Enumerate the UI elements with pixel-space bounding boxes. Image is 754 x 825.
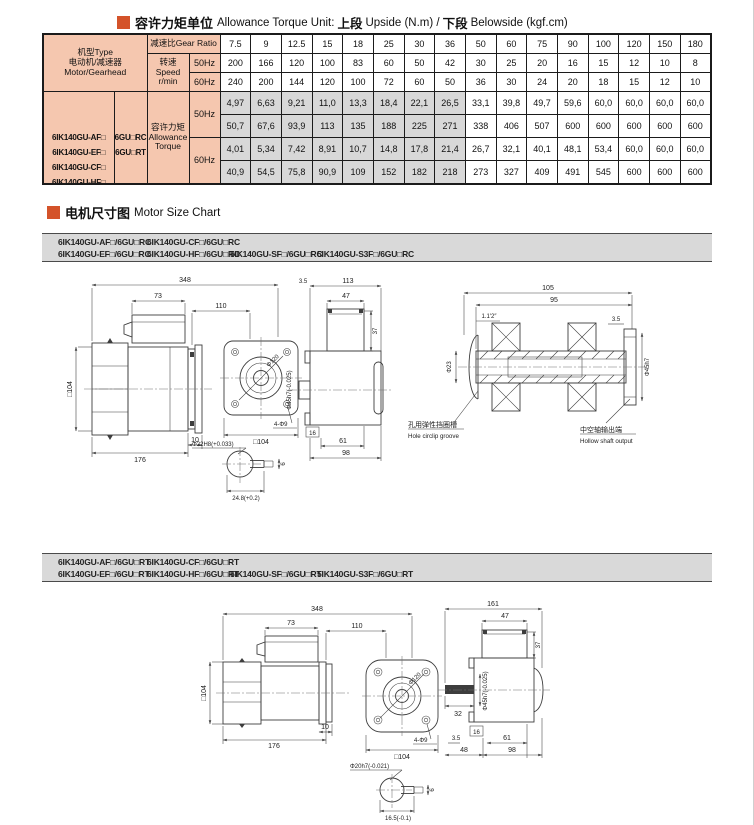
torque-cell: 13,3 [343,92,374,115]
note-hollow-en: Hollow shaft output [580,438,633,445]
torque-cell: 135 [343,115,374,138]
model-list: 6IK140GU-AF□6IK140GU-EF□6IK140GU-CF□6IK1… [44,130,114,145]
speed-cell: 16 [557,54,588,73]
gear-ratio-cell: 30 [404,34,435,54]
rc-model-label: 5IK140GU-SF□/6GU□RC [230,248,317,260]
note-circlip-zh: 孔用弹性挡圈槽 [408,420,457,429]
speed-cell: 30 [496,73,527,92]
dim-frame-size: □104 [201,685,208,701]
torque-cell: 48,1 [557,138,588,161]
dim-key-bore: Φ20h7(-0.021) [350,764,389,770]
torque-cell: 59,6 [557,92,588,115]
torque-cell: 26,5 [435,92,466,115]
speed-cell: 120 [312,73,343,92]
speed-unit: r/min [148,77,189,87]
gearhead-list: 6GU□RC6GU□RT [115,130,147,145]
dim-edge: 3.5 [612,317,621,323]
gearhead-label: 6GU□RC [115,130,147,145]
dim-taper: 1.1′2″ [482,314,498,320]
speed-cell: 50 [435,73,466,92]
speed-cell: 166 [251,54,282,73]
rt-model-label: 6IK140GU-CF□/6GU□RT [147,556,230,568]
circlip-groove-note: 孔用弹性挡圈槽 Hole circlip groove [408,391,478,440]
torque-cell: 9,21 [281,92,312,115]
torque-cell: 90,9 [312,161,343,185]
dim-shaft-dia: Φ45h7(-0.025) [287,370,293,409]
torque-cell: 60,0 [649,92,680,115]
gear-ratio-cell: 15 [312,34,343,54]
dim-total-length: 348 [179,277,191,284]
rt-front-view: Φ120 4-Φ9 □104 [362,656,442,761]
rc-model-label: 6IK140GU-CF□/6GU□RC [147,236,230,248]
dim-bolt-holes: 4-Φ9 [274,422,288,428]
torque-cell: 26,7 [465,138,496,161]
speed-cell: 72 [373,73,404,92]
rt-side-view: 348 73 110 □104 176 10 [201,606,412,750]
rc-bar-line1: 6IK140GU-AF□/6GU□RC6IK140GU-CF□/6GU□RC [58,236,712,248]
gear-ratio-cell: 120 [619,34,650,54]
torque-upper-zh: 上段 [337,13,362,32]
torque-cell: 7,42 [281,138,312,161]
speed-cell: 12 [649,73,680,92]
rc-models-bar: 6IK140GU-AF□/6GU□RC6IK140GU-CF□/6GU□RC 6… [42,233,712,262]
gearhead-cell: 6GU□RC6GU□RT [114,92,147,185]
rt-shaft-side-view: 161 47 37 32 Φ45h7(-0.025) 16 3.5 61 48 … [438,601,550,758]
dim-frame-size: □104 [67,381,74,397]
hz60-header-cell: 60Hz [189,73,220,92]
rt-dimension-drawing: 348 73 110 □104 176 10 Φ12 [190,588,690,825]
dim-hub: Φ45h7 [645,357,651,376]
dim-shaft-dia: Φ45h7(-0.025) [483,671,489,710]
torque-cell: 188 [373,115,404,138]
torque-cell: 600 [649,115,680,138]
model-label: 6IK140GU-CF□ [44,160,114,175]
speed-cell: 8 [680,54,711,73]
torque-cell: 10,7 [343,138,374,161]
dim-61: 61 [503,735,511,742]
dim-key-width: 6 [281,462,287,466]
torque-cell: 600 [619,115,650,138]
catalog-page: { "torque_header": { "title_zh": "容许力矩单位… [0,0,754,825]
torque-cell: 600 [588,115,619,138]
dim-16: 16 [309,431,316,437]
torque-cell: 273 [465,161,496,185]
dim-side-total: 113 [342,278,353,285]
dim-face-frame: □104 [253,439,269,446]
gear-ratio-cell: 25 [373,34,404,54]
speed-cell: 10 [680,73,711,92]
speed-cell: 100 [343,73,374,92]
dim-box-height: 37 [373,327,379,334]
gear-ratio-cell: 50 [465,34,496,54]
speed-cell: 12 [619,54,650,73]
size-title-en: Motor Size Chart [134,207,220,219]
dim-bore: Φ23 [447,361,453,373]
gear-ratio-row: 机型Type 电动机/减速器 Motor/Gearhead 减速比Gear Ra… [43,34,711,54]
torque-cell: 218 [435,161,466,185]
gear-ratio-cell: 12.5 [281,34,312,54]
rc-keyway-detail: Φ22H8(+0.033) 6 24.8(+0.2) [192,442,287,502]
speed-cell: 25 [496,54,527,73]
dim-right-total: 161 [487,601,499,608]
speed-cell: 200 [251,73,282,92]
torque-cell: 182 [404,161,435,185]
dim-98: 98 [508,747,516,754]
speed-cell: 144 [281,73,312,92]
torque-cell: 53,4 [588,138,619,161]
rc-hollow-shaft-section: 105 95 1.1′2″ 3.5 Φ23 Φ45h7 中空轴输出端 Hollo… [447,285,651,445]
dim-bolt-holes: 4-Φ9 [414,738,428,744]
dim-gear-length: 110 [215,303,226,310]
torque-cell: 60,0 [680,92,711,115]
torque-cell: 14,8 [373,138,404,161]
torque-cell: 4,01 [220,138,251,161]
torque-cell: 39,8 [496,92,527,115]
torque-cell: 545 [588,161,619,185]
speed-cell: 60 [404,73,435,92]
gearhead-label: 6GU□RT [115,145,147,160]
torque-section-header: 容许力矩单位 Allowance Torque Unit: 上段 Upside … [117,13,568,32]
hz50-header-cell: 50Hz [189,54,220,73]
rt-model-label: 6IK140GU-EF□/6GU□RT [58,568,147,580]
hz60-body-cell: 60Hz [189,138,220,185]
dim-box-width: 47 [501,613,509,620]
speed-cell: 42 [435,54,466,73]
rc-bar-line2: 6IK140GU-EF□/6GU□RC6IK140GU-HF□/6GU□RC5I… [58,248,712,260]
allowance-en2: Torque [148,142,189,152]
torque-cell: 54,5 [251,161,282,185]
speed-cell: 18 [588,73,619,92]
torque-cell: 22,1 [404,92,435,115]
torque-cell: 50,7 [220,115,251,138]
speed-cell: 83 [343,54,374,73]
dim-16: 16 [473,730,480,736]
gear-ratio-cell: 36 [435,34,466,54]
speed-cell: 200 [220,54,251,73]
type-line3: Motor/Gearhead [44,68,147,78]
speed-cell: 120 [281,54,312,73]
rc-dimension-drawing: 348 73 110 □104 176 10 [40,265,720,515]
torque-cell: 225 [404,115,435,138]
dim-bolt-circle: Φ120 [408,671,423,686]
torque-cell: 406 [496,115,527,138]
torque-cell: 67,6 [251,115,282,138]
speed-cell: 24 [527,73,558,92]
speed-cell: 60 [373,54,404,73]
rt-model-label: 6IK140GU-HF□/6GU□RT [147,568,230,580]
note-hollow-zh: 中空轴输出端 [580,425,622,434]
torque-cell: 327 [496,161,527,185]
dim-section-inner: 95 [550,297,558,304]
model-label: 6IK140GU-AF□ [44,130,114,145]
torque-50-nm-row: 6IK140GU-AF□6IK140GU-EF□6IK140GU-CF□6IK1… [43,92,711,115]
torque-cell: 600 [680,161,711,185]
orange-bullet-icon [47,206,60,219]
models-cell: 6IK140GU-AF□6IK140GU-EF□6IK140GU-CF□6IK1… [43,92,114,185]
torque-cell: 18,4 [373,92,404,115]
torque-cell: 8,91 [312,138,343,161]
torque-cell: 600 [557,115,588,138]
gear-ratio-cell: 18 [343,34,374,54]
dim-box-width: 47 [342,293,350,300]
dim-offset: 3.5 [299,279,308,285]
rc-model-label: 6IK140GU-HF□/6GU□RC [147,248,230,260]
rt-bar-line1: 6IK140GU-AF□/6GU□RT6IK140GU-CF□/6GU□RT [58,556,712,568]
torque-cell: 600 [649,161,680,185]
torque-cell: 60,0 [649,138,680,161]
hz50-body-cell: 50Hz [189,92,220,138]
rc-output-side-view: 3.5 113 47 37 Φ45h7(-0.025) 16 61 98 [287,278,392,461]
rt-bar-line2: 6IK140GU-EF□/6GU□RT6IK140GU-HF□/6GU□RT5I… [58,568,712,580]
dim-key-width: 6 [430,788,436,792]
dim-gear-length: 110 [351,623,362,630]
gear-ratio-cell: 75 [527,34,558,54]
torque-cell: 6,63 [251,92,282,115]
rt-model-label: 5IK140GU-SF□/6GU□RT [230,568,317,580]
torque-lower-zh: 下段 [443,13,468,32]
dim-face-frame: □104 [394,754,410,761]
torque-cell: 113 [312,115,343,138]
torque-cell: 40,1 [527,138,558,161]
torque-cell: 93,9 [281,115,312,138]
dim-box-height: 37 [536,641,542,648]
rc-model-label: 5IK140GU-S3F□/6GU□RC [317,248,414,260]
torque-cell: 491 [557,161,588,185]
speed-cell: 100 [312,54,343,73]
speed-cell: 10 [649,54,680,73]
torque-cell: 75,8 [281,161,312,185]
torque-cell: 152 [373,161,404,185]
dim-3-5: 3.5 [452,736,461,742]
torque-cell: 600 [680,115,711,138]
dim-box-length: 73 [154,293,162,300]
dim-98: 98 [342,450,350,457]
torque-cell: 600 [619,161,650,185]
torque-cell: 32,1 [496,138,527,161]
speed-cell: 30 [465,54,496,73]
torque-cell: 40,9 [220,161,251,185]
model-label: 6IK140GU-HF□ [44,175,114,184]
torque-cell: 33,1 [465,92,496,115]
size-section-header: 电机尺寸图 Motor Size Chart [47,203,220,222]
dim-section-total: 105 [542,285,554,292]
torque-cell: 4,97 [220,92,251,115]
speed-cell: 15 [588,54,619,73]
torque-lower-en: Belowside (kgf.cm) [471,17,568,29]
speed-label: 转速Speed [148,58,189,78]
gear-ratio-cell: 100 [588,34,619,54]
torque-cell: 60,0 [619,92,650,115]
torque-cell: 21,4 [435,138,466,161]
gear-ratio-cell: 180 [680,34,711,54]
torque-cell: 11,0 [312,92,343,115]
dim-box-length: 73 [287,620,295,627]
rc-side-view: 348 73 110 □104 176 10 [67,277,278,464]
gear-ratio-cell: 150 [649,34,680,54]
allowance-label-cell: 容许力矩 Allowance Torque [147,92,189,185]
dim-total-length: 348 [311,606,323,613]
torque-upper-en: Upside (N.m) / [365,17,439,29]
dim-key-span: 16.5(-0.1) [385,816,411,822]
torque-cell: 507 [527,115,558,138]
speed-label-cell: 转速Speed r/min [147,54,189,92]
dim-flange-gap: 10 [321,724,329,731]
speed-cell: 50 [404,54,435,73]
torque-cell: 17,8 [404,138,435,161]
torque-cell: 271 [435,115,466,138]
dim-motor-length: 176 [268,743,280,750]
dim-48: 48 [460,747,468,754]
dim-key-span: 24.8(+0.2) [232,496,260,502]
gear-ratio-cell: 60 [496,34,527,54]
torque-cell: 60,0 [680,138,711,161]
rc-model-label: 6IK140GU-EF□/6GU□RC [58,248,147,260]
model-label: 6IK140GU-EF□ [44,145,114,160]
torque-cell: 49,7 [527,92,558,115]
dim-61: 61 [339,438,347,445]
torque-cell: 60,0 [619,138,650,161]
speed-cell: 36 [465,73,496,92]
speed-cell: 20 [527,54,558,73]
rt-models-bar: 6IK140GU-AF□/6GU□RT6IK140GU-CF□/6GU□RT 6… [42,553,712,582]
rc-model-label: 6IK140GU-AF□/6GU□RC [58,236,147,248]
speed-cell: 20 [557,73,588,92]
rt-model-label: 6IK140GU-AF□/6GU□RT [58,556,147,568]
dim-key-bore: Φ22H8(+0.033) [192,442,234,448]
rt-model-label: 5IK140GU-S3F□/6GU□RT [317,568,413,580]
torque-cell: 338 [465,115,496,138]
dim-shaft-length: 32 [454,711,462,718]
gear-ratio-label-cell: 减速比Gear Ratio [147,34,220,54]
type-header-cell: 机型Type 电动机/减速器 Motor/Gearhead [43,34,147,92]
dim-motor-length: 176 [134,457,146,464]
gear-ratio-cell: 9 [251,34,282,54]
orange-bullet-icon [117,16,130,29]
speed-cell: 15 [619,73,650,92]
gear-ratio-cell: 90 [557,34,588,54]
torque-cell: 409 [527,161,558,185]
speed-cell: 240 [220,73,251,92]
torque-cell: 5,34 [251,138,282,161]
torque-cell: 60,0 [588,92,619,115]
gear-ratio-cell: 7.5 [220,34,251,54]
torque-cell: 109 [343,161,374,185]
allowance-torque-table: 机型Type 电动机/减速器 Motor/Gearhead 减速比Gear Ra… [42,33,712,185]
torque-title-zh: 容许力矩单位 [135,13,213,32]
torque-title-en: Allowance Torque Unit: [217,17,334,29]
rt-keyway-detail: Φ20h7(-0.021) 6 16.5(-0.1) [350,764,436,822]
size-title-zh: 电机尺寸图 [65,203,130,222]
note-circlip-en: Hole circlip groove [408,433,459,440]
